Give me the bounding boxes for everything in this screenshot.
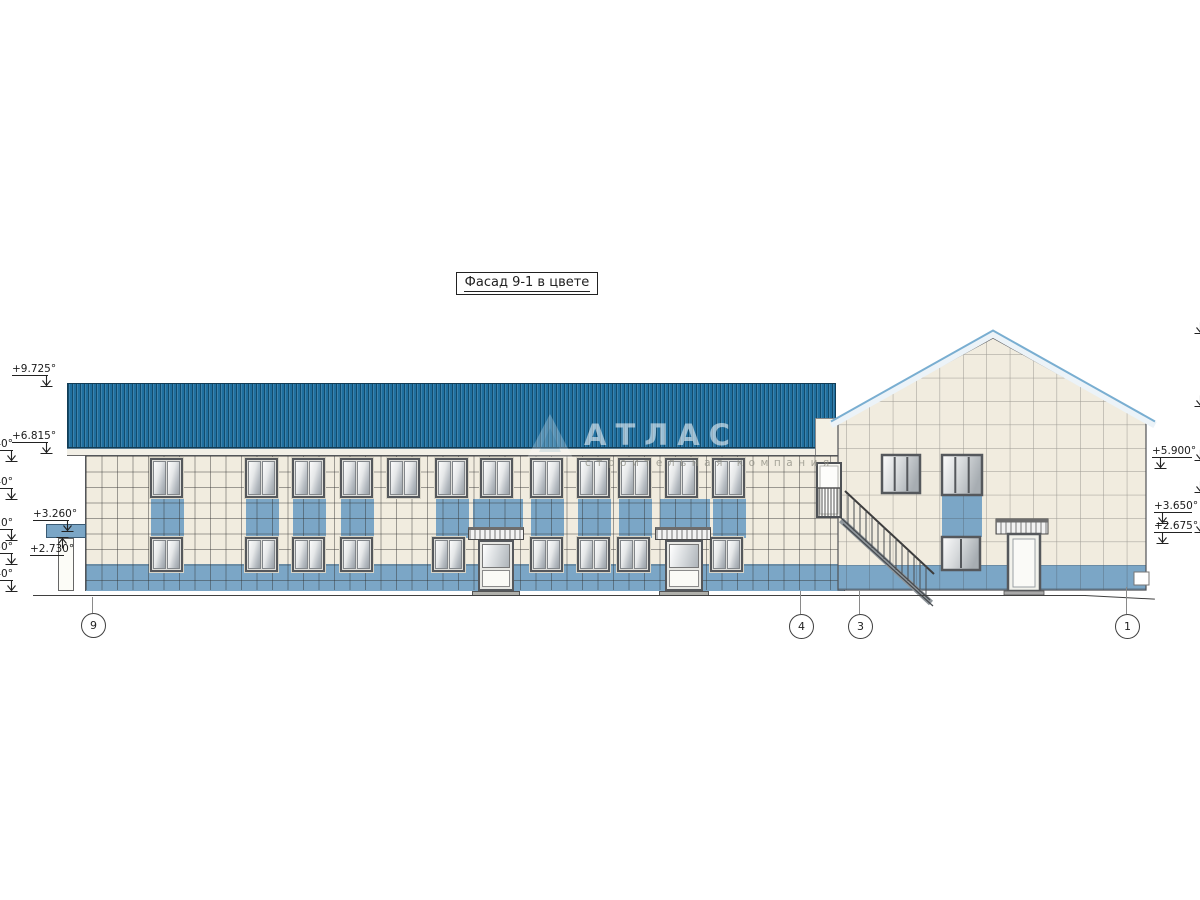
door-glass [482,544,510,568]
drawing-title: Фасад 9-1 в цвете [464,275,591,292]
axis-bubble-4: 4 [789,614,814,639]
elevation-arrow-icon [40,375,53,389]
elevation-mark-canopy-bottom: +2.730° [30,543,64,556]
upper-window [387,458,420,498]
gable-window-c [942,537,980,570]
upper-window [480,458,513,498]
upper-window [435,458,468,498]
upper-window [150,458,183,498]
ground-line [33,595,1086,596]
interfloor-panel [246,499,279,538]
lower-window [617,537,650,572]
lower-window [245,537,278,572]
axis-bubble-1: 1 [1115,614,1140,639]
interfloor-panel [151,499,184,538]
elevation-mark-right-1: +5.900° [1152,445,1192,458]
axis-leader [800,591,801,614]
elevation-arrow-icon [1194,449,1200,463]
gable-window-b [942,455,982,495]
interfloor-panel [578,499,611,538]
elevation-mark-canopy-top: +3.260° [33,508,69,521]
elevation-mark-partial: 40° [0,568,13,581]
upper-window [340,458,373,498]
axis-bubble-3: 3 [848,614,873,639]
elevation-arrow-icon [56,535,69,549]
elevation-arrow-icon [5,580,18,594]
elevation-arrow-icon [1194,395,1200,409]
elevation-mark-eaves: +6.815° [12,430,48,443]
upper-window [530,458,563,498]
axis-leader [92,597,93,613]
elevation-arrow-icon [1154,457,1167,471]
lower-window [292,537,325,572]
gable-wing [810,318,1160,613]
lower-window [577,537,610,572]
elevation-mark-partial: 40° [0,438,13,451]
interfloor-panel [293,499,326,538]
elevation-arrow-icon [5,488,18,502]
interfloor-panel [436,499,469,538]
gable-entrance-door [1004,534,1044,595]
lower-window [710,537,743,572]
elevation-arrow-icon [1194,521,1200,535]
entrance-door-2 [665,540,703,591]
elevation-arrow-icon [5,450,18,464]
interfloor-panel [713,499,746,538]
watermark-subtitle: строительная компания [585,457,835,469]
interfloor-panel [341,499,374,538]
upper-window [245,458,278,498]
corner-step [1134,572,1149,585]
elevation-arrow-icon [61,520,74,534]
facade-drawing-canvas: Фасад 9-1 в цвете [0,0,1200,900]
entrance-door-1 [478,540,514,591]
interfloor-panel-door [473,499,523,529]
door-glass [669,544,699,568]
interfloor-panel [531,499,564,538]
elevation-arrow-icon [40,442,53,456]
door-canopy-2 [655,527,711,540]
upper-window [292,458,325,498]
lower-window [340,537,373,572]
gable-window-a [882,455,920,493]
lower-window [530,537,563,572]
axis-leader [859,591,860,614]
elevation-mark-right-3: +2.675° [1154,520,1192,533]
elevation-arrow-icon [1156,532,1169,546]
elevation-mark-ridge: +9.725° [12,363,48,376]
door-panel [482,570,510,587]
elevation-arrow-icon [1194,322,1200,336]
lower-window [150,537,183,572]
axis-leader [1126,587,1127,614]
elevation-mark-partial: 10° [0,517,13,530]
drawing-title-box: Фасад 9-1 в цвете [456,272,598,295]
elevation-mark-right-2: +3.650° [1154,500,1192,513]
elevation-mark-partial: 40° [0,476,13,489]
interfloor-panel-door [660,499,710,529]
lower-window [432,537,465,572]
elevation-mark-partial: 50° [0,541,13,554]
gable-door-canopy [996,519,1048,534]
elevation-arrow-icon [5,553,18,567]
axis-bubble-9: 9 [81,613,106,638]
elevation-arrow-icon [1194,481,1200,495]
watermark-title: АТЛАС [584,418,739,452]
door-canopy-1 [468,527,524,540]
interfloor-panel [619,499,652,538]
watermark-triangle-icon [527,414,573,458]
door-panel [669,570,699,587]
